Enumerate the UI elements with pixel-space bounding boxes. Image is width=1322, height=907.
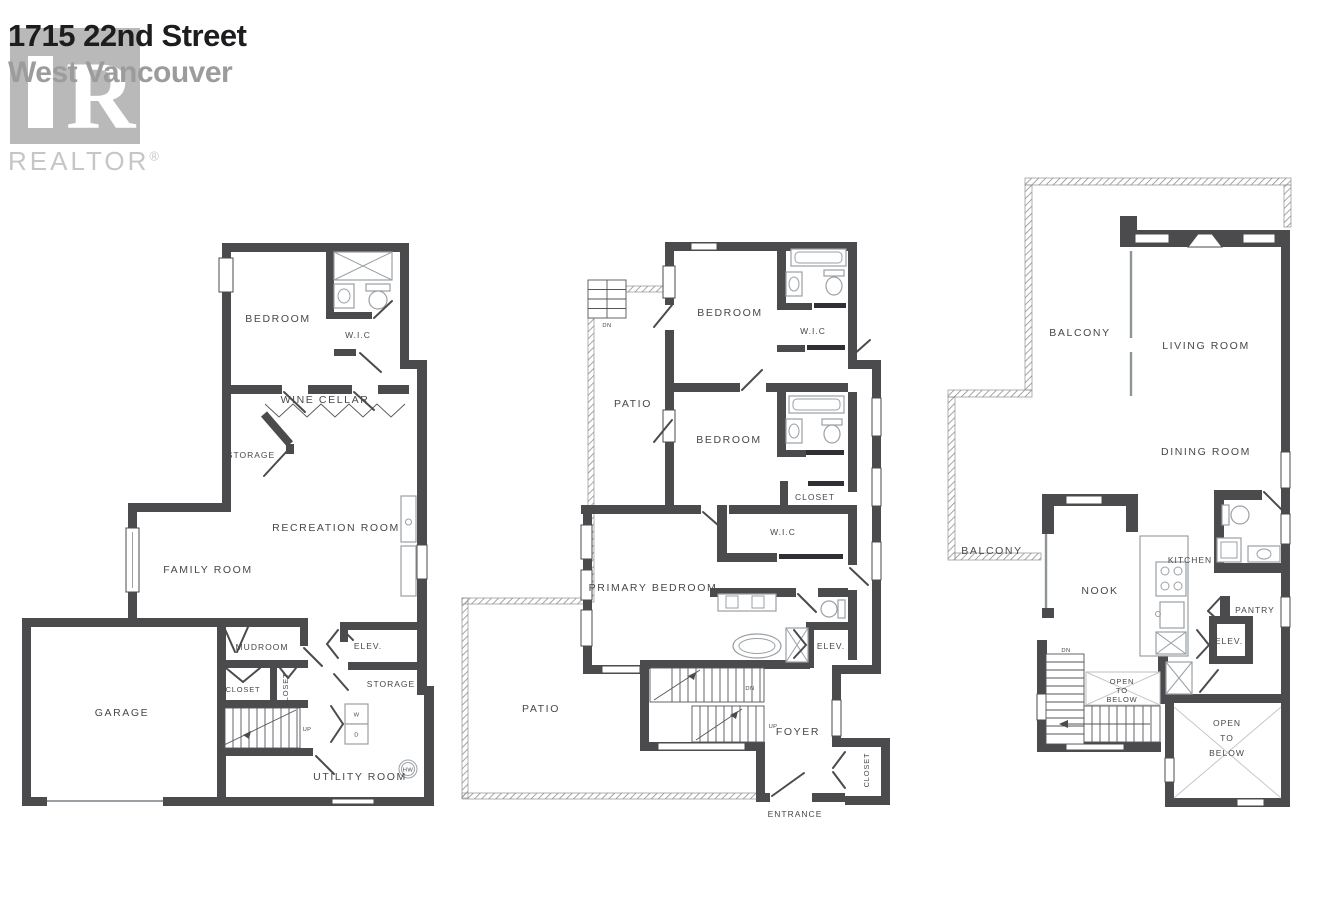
otb-small-line1: OPEN [1110,677,1134,686]
room-label-kitchen: KITCHEN [1168,555,1212,565]
realtor-brand-text: REALTOR [8,146,149,176]
room-label-primary-bedroom: PRIMARY BEDROOM [589,582,718,594]
stairs-dn-label: DN [745,686,754,692]
room-label-closet-b: CLOSET [281,673,290,708]
stairs-dn-exterior-label: DN [602,323,611,329]
room-label-storage-upper: STORAGE [227,450,275,460]
dryer-label: D [354,733,359,739]
floor-plan-sheet: R [0,0,1322,902]
room-label-entrance: ENTRANCE [768,809,823,819]
room-label-closet-entry: CLOSET [862,753,871,788]
room-label-family: FAMILY ROOM [163,564,253,576]
room-label-living: LIVING ROOM [1162,340,1250,352]
stairs-dn-label-upper: DN [1061,648,1070,654]
main-stairs [650,668,764,742]
room-label-storage-lower: STORAGE [367,679,415,689]
basement-stairs [222,708,300,748]
room-label-nook: NOOK [1081,585,1118,597]
otb-large-line3: BELOW [1209,748,1245,758]
otb-small-line2: TO [1116,686,1128,695]
room-label-elev: ELEV. [354,641,382,651]
washer-label: W [354,713,360,719]
floor-plans-canvas: BEDROOM W.I.C WINE CELLAR STORAGE RECREA… [0,0,1322,902]
room-label-recreation: RECREATION ROOM [272,522,400,534]
room-label-closet-a: CLOSET [226,685,261,694]
otb-large-line1: OPEN [1213,718,1241,728]
upper-glass-walls [1046,251,1131,608]
kitchen-island [1140,536,1188,656]
room-label-closet: CLOSET [795,492,835,502]
room-label-patio-lower: PATIO [522,703,560,715]
room-label-balcony-upper: BALCONY [1049,327,1110,339]
room-label-bedroom: BEDROOM [245,313,310,325]
page-title: 1715 22nd Street [8,18,246,54]
stairs-up-label: UP [303,727,312,733]
room-label-pantry: PANTRY [1235,605,1275,615]
cooktop [1156,562,1186,596]
room-label-foyer: FOYER [776,726,820,738]
hot-water-label: HW [403,768,414,774]
room-label-mudroom: MUDROOM [236,642,289,652]
room-label-garage: GARAGE [95,707,150,719]
room-label-dining: DINING ROOM [1161,446,1251,458]
otb-small-line3: BELOW [1106,695,1137,704]
room-label-elev-upper: ELEV. [1215,636,1243,646]
otb-large-line2: TO [1220,733,1234,743]
main-plan: DN [462,242,890,819]
page-subtitle: West Vancouver [8,56,232,90]
basement-plan: BEDROOM W.I.C WINE CELLAR STORAGE RECREA… [22,243,434,806]
room-label-bedroom-upper: BEDROOM [697,307,762,319]
upper-plan: BALCONY LIVING ROOM DINING ROOM BALCONY … [948,178,1291,807]
room-label-wic-upper: W.I.C [800,326,826,336]
realtor-wordmark: REALTOR® [8,146,162,177]
room-label-wine-cellar: WINE CELLAR [281,394,370,406]
registered-mark: ® [149,148,162,163]
room-label-wic: W.I.C [345,330,371,340]
kitchen-sink [1160,602,1184,628]
room-label-patio-upper: PATIO [614,398,652,410]
room-label-utility: UTILITY ROOM [313,771,407,783]
room-label-bedroom-lower: BEDROOM [696,434,761,446]
room-label-balcony-lower: BALCONY [961,545,1022,557]
room-label-wic-lower: W.I.C [770,527,796,537]
stairs-up-label-main: UP [769,724,778,730]
room-label-elev-main: ELEV. [817,641,845,651]
